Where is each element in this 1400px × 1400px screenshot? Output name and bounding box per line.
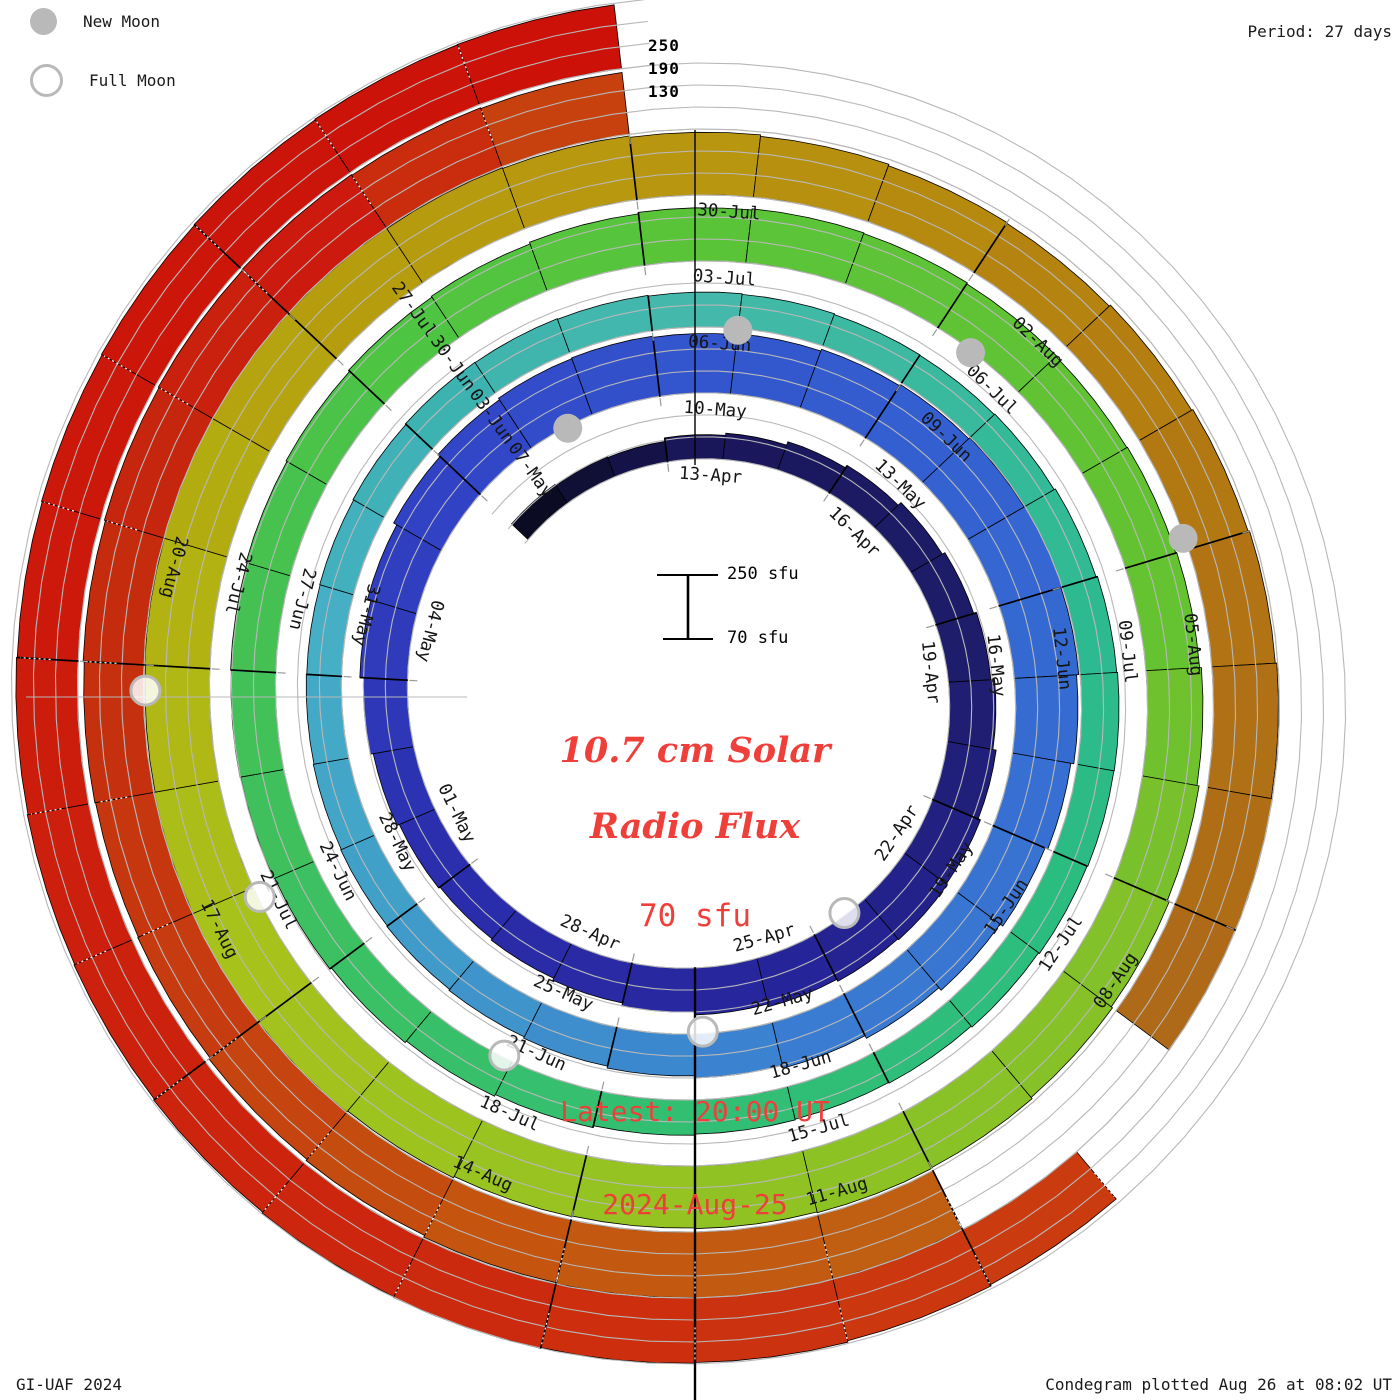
flux-bar-day [1142, 668, 1203, 786]
baseline-tick [860, 440, 864, 447]
baseline-tick [645, 267, 646, 275]
radial-scale-250: 250 [648, 36, 680, 55]
date-label: 10-May [683, 398, 747, 422]
full-moon-label: Full Moon [89, 71, 176, 90]
baseline-tick [824, 495, 828, 502]
new-moon-marker [1169, 524, 1198, 553]
base-flux-label: 70 sfu [395, 898, 995, 934]
baseline-tick [482, 496, 488, 501]
radial-scale-190: 190 [648, 59, 680, 78]
full-moon-marker [131, 676, 160, 705]
new-moon-label: New Moon [83, 12, 160, 31]
radial-scale-labels: 250 190 130 [648, 36, 680, 101]
chart-title-line1: 10.7 cm Solar [395, 732, 995, 770]
radial-scale-130: 130 [648, 82, 680, 101]
flux-bar-day [608, 441, 668, 476]
new-moon-marker [723, 316, 752, 345]
flux-bar-day [313, 758, 374, 850]
latest-line2: 2024-Aug-25 [395, 1189, 995, 1220]
full-moon-marker [245, 882, 274, 911]
baseline-tick [366, 938, 372, 943]
credit-label: GI-UAF 2024 [16, 1375, 122, 1394]
flux-bar-day [241, 770, 314, 879]
scale-bar-top-label: 250 sfu [727, 564, 799, 584]
baseline-tick [668, 464, 669, 472]
legend-full-moon: Full Moon [30, 64, 176, 97]
legend-new-moon: New Moon [30, 8, 176, 35]
date-label: 13-Apr [678, 464, 742, 488]
baseline-tick [660, 398, 661, 406]
period-label: Period: 27 days [1248, 22, 1393, 41]
latest-line1: Latest: 20:00 UT [395, 1096, 995, 1127]
date-label: 03-Jul [692, 266, 756, 290]
new-moon-marker [553, 414, 582, 443]
scale-bar-bottom-label: 70 sfu [727, 628, 788, 648]
flux-bar-day [530, 214, 645, 291]
flux-bar-day [1207, 663, 1278, 799]
baseline-tick [1105, 874, 1112, 877]
flux-bar-day [1077, 672, 1119, 771]
latest-timestamp: Latest: 20:00 UT 2024-Aug-25 [395, 1034, 995, 1282]
baseline-tick [1116, 569, 1124, 571]
baseline-tick [990, 607, 998, 609]
flux-bar-day [306, 674, 348, 764]
chart-title-line2: Radio Flux [395, 808, 995, 846]
baseline-tick [932, 329, 936, 336]
condegram-page: 13-Apr16-Apr19-Apr22-Apr25-Apr28-Apr01-M… [0, 0, 1400, 1400]
center-scale-bar [657, 575, 718, 639]
baseline-tick [313, 977, 319, 982]
baseline-tick [434, 450, 440, 455]
moon-legend: New Moon Full Moon [30, 8, 176, 97]
baseline-tick [926, 625, 934, 627]
new-moon-marker [956, 338, 985, 367]
baseline-tick [969, 274, 973, 281]
plotted-timestamp: Condegram plotted Aug 26 at 08:02 UT [1045, 1375, 1392, 1394]
baseline-tick [637, 202, 638, 210]
baseline-tick [386, 405, 392, 410]
center-title-block: 10.7 cm Solar Radio Flux 70 sfu Latest: … [395, 694, 995, 1320]
baseline-tick [338, 360, 344, 365]
flux-bar-day [556, 457, 615, 504]
scale-bar-labels: 250 sfu 70 sfu [0, 0, 39, 76]
